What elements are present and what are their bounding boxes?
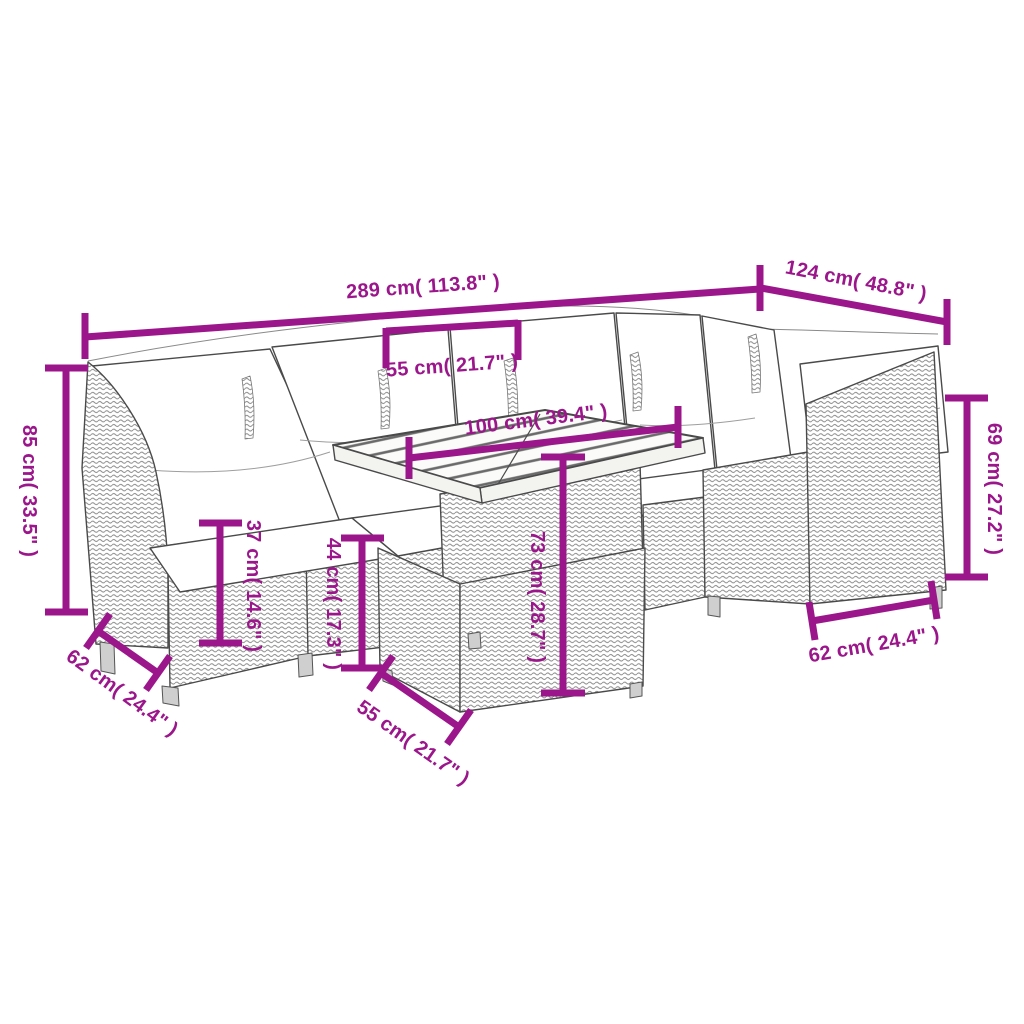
dim-back-height-right-line [945, 398, 988, 577]
dim-table-height-label: 73 cm( 28.7" ) [527, 531, 547, 663]
dim-footstool-height-label: 44 cm( 17.3" ) [323, 538, 343, 670]
leg [162, 686, 179, 706]
leg [630, 682, 642, 698]
furniture-illustration [0, 0, 1024, 1024]
dim-back-height-left-line [45, 368, 88, 612]
leg [298, 653, 313, 677]
sofa-right-front [703, 452, 810, 604]
backrest-top-line-right [757, 329, 938, 334]
product-dimension-diagram: 289 cm( 113.8" ) 124 cm( 48.8" ) 85 cm( … [0, 0, 1024, 1024]
sofa-base-middle [643, 497, 705, 610]
dim-back-height-right-label: 69 cm( 27.2" ) [984, 423, 1004, 555]
leg [708, 596, 720, 617]
leg [468, 632, 481, 649]
dim-back-height-left-label: 85 cm( 33.5" ) [19, 425, 39, 557]
dim-seat-height-label: 37 cm( 14.6" ) [243, 520, 263, 652]
back-cushion [702, 316, 792, 470]
